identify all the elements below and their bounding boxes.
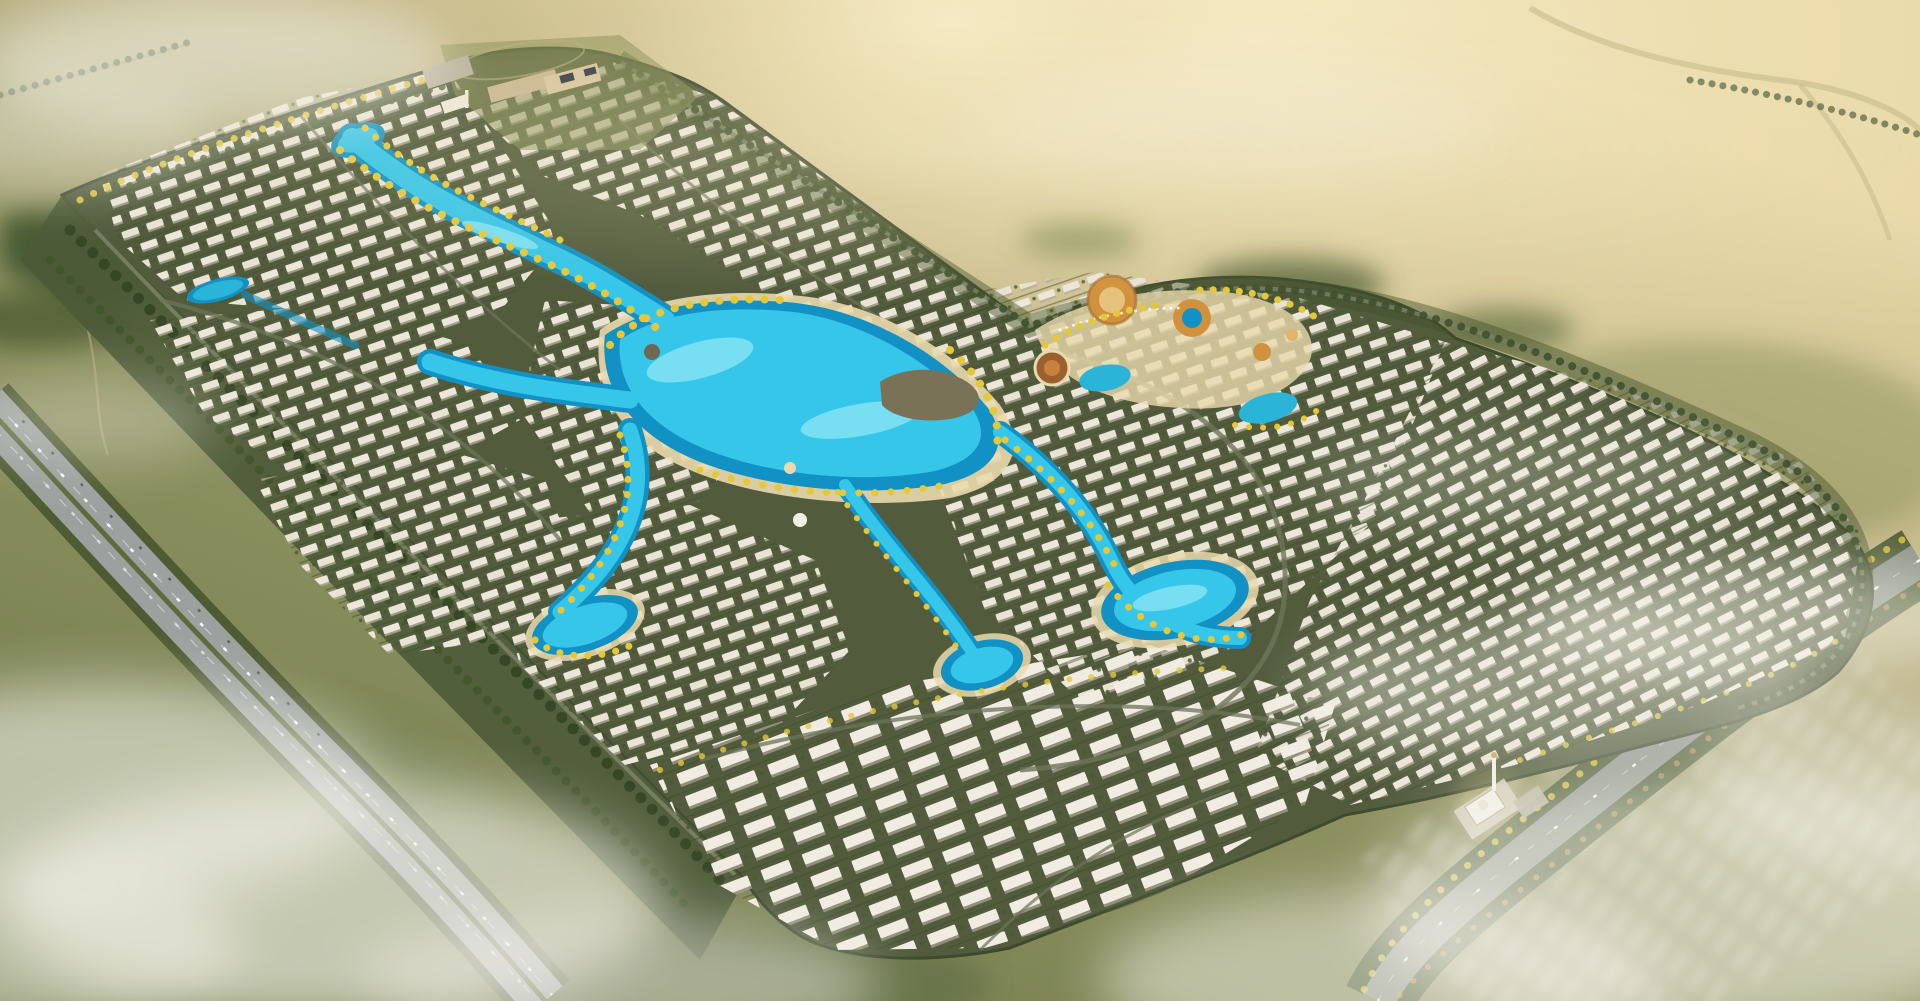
amenity-pavilion — [1253, 343, 1271, 361]
amenity-crater-core — [1044, 360, 1060, 376]
mosque-minaret — [1492, 757, 1496, 791]
haze-streak — [1310, 430, 1750, 530]
amenity-ring-pool — [1182, 308, 1202, 328]
lagoon-rock — [644, 344, 660, 360]
lagoon-sand-islet — [784, 462, 796, 474]
aerial-render-scene — [0, 0, 1920, 1001]
render-canvas — [0, 0, 1920, 1001]
dome-pavilion — [793, 513, 807, 527]
top-warm-haze — [0, 0, 1920, 300]
amenity-pavilion — [1286, 329, 1298, 341]
